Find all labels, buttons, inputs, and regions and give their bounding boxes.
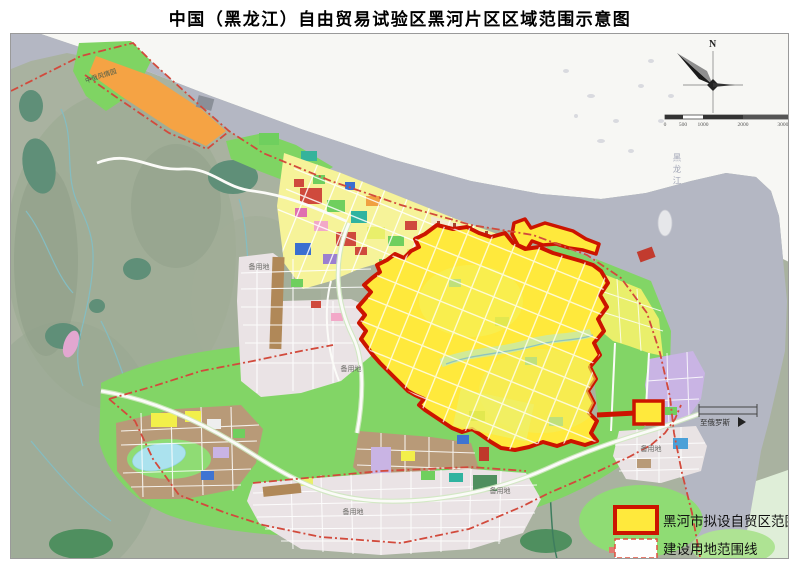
- legend-swatch-ftz: [615, 507, 657, 533]
- reserve-land-label: 备用地: [341, 364, 362, 373]
- map-frame: 中俄风情园 备用地 备用地 备用地 备用地 备用地 至俄罗斯 黑龙江 N 0 5…: [10, 33, 789, 559]
- compass-north-label: N: [709, 39, 717, 50]
- ftz-connector: [597, 413, 637, 415]
- legend-swatch-construction: [615, 539, 657, 558]
- river-label: 黑龙江: [672, 153, 682, 188]
- legend-label-construction: 建设用地范围线: [663, 542, 758, 557]
- scale-tick: 3000m: [777, 122, 789, 128]
- legend-item-construction-boundary: 建设用地范围线: [615, 539, 758, 558]
- scale-tick: 1000: [698, 122, 709, 128]
- to-russia-label: 至俄罗斯: [700, 417, 730, 427]
- river-island: [658, 210, 672, 236]
- reserve-land-label: 备用地: [343, 507, 364, 516]
- legend-label-ftz: 黑河市拟设自贸区范围: [663, 513, 789, 529]
- ftz-port-parcel: [634, 401, 663, 424]
- scale-tick: 2000: [738, 122, 749, 128]
- map-title: 中国（黑龙江）自由贸易试验区黑河片区区域范围示意图: [0, 5, 800, 30]
- reserve-land-label: 备用地: [641, 444, 662, 453]
- planning-map: 中俄风情园 备用地 备用地 备用地 备用地 备用地 至俄罗斯 黑龙江 N 0 5…: [11, 34, 789, 559]
- scale-tick: 500: [679, 122, 688, 128]
- reserve-land-label: 备用地: [490, 486, 511, 495]
- reserve-land-label: 备用地: [249, 262, 270, 271]
- scale-tick: 0: [664, 122, 667, 128]
